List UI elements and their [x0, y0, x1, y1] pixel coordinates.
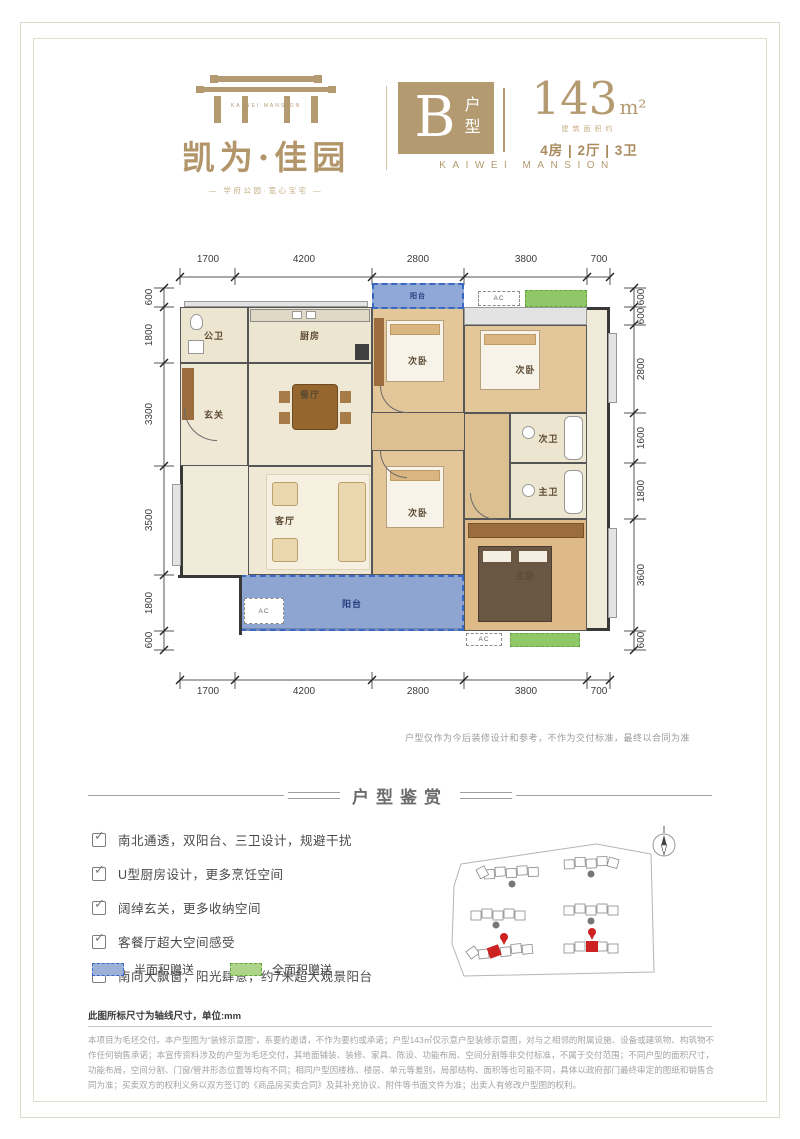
unit-rooms-summary: 4房 | 2厅 | 3卫	[514, 139, 664, 159]
ac-label: AC	[258, 608, 269, 615]
bath-sink	[522, 484, 535, 497]
master-bed	[478, 546, 552, 622]
dim-right-6: 3600	[636, 555, 648, 595]
feature-text: U型厨房设计，更多烹饪空间	[118, 864, 284, 883]
dim-right-7: 600	[636, 620, 648, 660]
double-line	[460, 792, 512, 799]
ac-unit-top: AC	[478, 291, 520, 306]
bay-window-living	[172, 484, 181, 566]
divider-line	[88, 795, 284, 796]
dim-bottom-4: 3800	[502, 686, 550, 698]
dim-left-1: 600	[144, 277, 156, 317]
half-gift-swatch	[92, 963, 124, 976]
dim-left-4: 3500	[144, 500, 156, 540]
ac-unit-bottom-left: AC	[244, 598, 284, 624]
checkbox-icon	[92, 935, 106, 949]
dining-chair	[340, 412, 351, 424]
brand-name-cn: 凯为·佳园	[150, 131, 382, 179]
dim-bottom-1: 1700	[184, 686, 232, 698]
checkbox-icon	[92, 901, 106, 915]
dim-bottom-2: 4200	[280, 686, 328, 698]
dimension-strip-bottom: 1700 4200 2800 3800 700	[170, 670, 630, 706]
ac-label: AC	[493, 295, 504, 302]
bathtub	[564, 416, 583, 460]
section-header: 户型鉴赏	[88, 783, 712, 808]
footer-divider	[88, 1026, 712, 1027]
dim-bottom-5: 700	[575, 686, 623, 698]
dim-top-3: 2800	[394, 254, 442, 266]
ac-label: AC	[478, 636, 489, 643]
feature-text: 客餐厅超大空间感受	[118, 932, 235, 951]
brand-logo: KAIWEI MANSION 凯为·佳园 — 学府公园·宽心宝宅 —	[150, 74, 382, 196]
room-label: 餐厅	[300, 388, 320, 401]
dimension-lines-right	[622, 280, 658, 660]
feature-item: 阔绰玄关，更多收纳空间	[92, 898, 432, 917]
wardrobe	[374, 318, 384, 386]
room-label: 公卫	[204, 329, 224, 342]
room-guest-bath: 公卫	[180, 307, 248, 363]
unit-area-value: 143	[532, 76, 618, 121]
building-marker	[588, 871, 595, 878]
bed	[386, 320, 444, 382]
dim-left-5: 1800	[144, 583, 156, 623]
dim-left-6: 600	[144, 620, 156, 660]
dimension-strip-right: 600 600 2800 1600 1800 3600 600	[622, 280, 658, 660]
legend-item: 全面积赠送	[230, 961, 332, 978]
gift-area-bottom	[510, 633, 580, 647]
armchair	[272, 538, 298, 562]
checkbox-icon	[92, 833, 106, 847]
legal-fine-print: 本项目为毛坯交付。本户型图为“装修示意图”，系要约邀请，不作为要约或承诺；户型1…	[88, 1033, 714, 1093]
dining-chair	[340, 391, 351, 403]
room-label: 主卧	[515, 569, 535, 582]
sofa	[338, 482, 366, 562]
stove	[355, 344, 369, 360]
header-divider	[386, 86, 387, 170]
full-gift-swatch	[230, 963, 262, 976]
section-title: 户型鉴赏	[352, 783, 448, 808]
legend-item: 半面积赠送	[92, 961, 194, 978]
dim-right-3: 2800	[636, 349, 648, 389]
dining-chair	[279, 391, 290, 403]
bathtub	[564, 470, 583, 514]
double-line	[288, 792, 340, 799]
room-label: 次卧	[515, 363, 535, 376]
room-label: 阳台	[410, 291, 426, 301]
gate-logo-icon: KAIWEI MANSION	[186, 74, 346, 124]
kitchen-sink	[292, 311, 302, 319]
gift-legend: 半面积赠送 全面积赠送	[92, 961, 332, 978]
building-marker	[509, 881, 516, 888]
room-label: 次卧	[408, 354, 428, 367]
highlighted-building	[586, 941, 598, 952]
site-plan-map	[446, 824, 698, 986]
legend-label: 半面积赠送	[134, 961, 194, 978]
svg-text:KAIWEI MANSION: KAIWEI MANSION	[231, 103, 301, 109]
legend-label: 全面积赠送	[272, 961, 332, 978]
dim-bottom-3: 2800	[394, 686, 442, 698]
bay-window-master	[608, 528, 617, 618]
feature-text: 阔绰玄关，更多收纳空间	[118, 898, 261, 917]
dim-top-1: 1700	[184, 254, 232, 266]
compass-icon	[653, 826, 675, 856]
unit-area-block: 143 m² 建筑面积约 4房 | 2厅 | 3卫	[514, 76, 664, 159]
feature-item: 南北通透，双阳台、三卫设计，规避干扰	[92, 830, 432, 849]
dim-right-2: 600	[636, 296, 648, 336]
bay-window-top-right	[464, 307, 587, 325]
floor-plan: 公卫 厨房 次卧 次卧 玄关 餐厅 次卫 主卫 客厅 次卧 主卧 阳台 AC 阳…	[180, 288, 610, 650]
room-label: 厨房	[300, 329, 320, 342]
wall-notch	[178, 575, 242, 635]
unit-letter: B	[414, 90, 455, 146]
feature-item: U型厨房设计，更多烹饪空间	[92, 864, 432, 883]
dimension-strip-left: 600 1800 3300 3500 1800 600	[140, 280, 174, 660]
dim-right-5: 1800	[636, 471, 648, 511]
plan-disclaimer: 户型仅作为今后装修设计和参考，不作为交付标准，最终以合同为准	[290, 731, 690, 744]
toilet	[190, 314, 203, 330]
room-label: 客厅	[275, 514, 295, 527]
unit-area-note: 建筑面积约	[514, 124, 664, 134]
bay-window-bedroom	[608, 333, 617, 403]
dim-right-4: 1600	[636, 418, 648, 458]
brand-tagline: — 学府公园·宽心宝宅 —	[150, 185, 382, 196]
gift-area-top	[525, 290, 587, 307]
building-marker	[588, 918, 595, 925]
dim-left-2: 1800	[144, 315, 156, 355]
dining-chair	[279, 412, 290, 424]
unit-area-unit: m²	[619, 95, 646, 119]
floorplan-poster-page: { "header": { "logo": { "brand_en": "KAI…	[0, 0, 800, 1139]
bath-sink	[522, 426, 535, 439]
feature-item: 客餐厅超大空间感受	[92, 932, 432, 951]
room-label: 玄关	[204, 408, 224, 421]
brand-name-en: KAIWEI MANSION	[398, 160, 656, 171]
window-top	[184, 301, 368, 307]
dim-left-3: 3300	[144, 394, 156, 434]
bath-sink	[188, 340, 204, 354]
room-label: 阳台	[342, 597, 362, 610]
feature-text: 南北通透，双阳台、三卫设计，规避干扰	[118, 830, 352, 849]
dimension-note: 此图所标尺寸为轴线尺寸，单位:mm	[88, 1008, 241, 1022]
kitchen-sink	[306, 311, 316, 319]
dim-top-5: 700	[575, 254, 623, 266]
unit-type-badge: B 户型	[398, 82, 494, 154]
building-marker	[493, 922, 500, 929]
room-label: 主卫	[538, 485, 558, 498]
unit-type-label: 户型	[462, 96, 478, 140]
dimension-strip-top: 1700 4200 2800 3800 700	[170, 252, 630, 286]
ac-unit-bottom-right: AC	[466, 633, 502, 646]
room-label: 次卧	[408, 506, 428, 519]
unit-divider	[503, 88, 505, 152]
checkbox-icon	[92, 867, 106, 881]
room-label: 次卫	[538, 432, 558, 445]
dim-top-4: 3800	[502, 254, 550, 266]
dim-top-2: 4200	[280, 254, 328, 266]
balcony-top: 阳台	[372, 283, 464, 309]
armchair	[272, 482, 298, 506]
hallway	[372, 413, 464, 450]
bed	[480, 330, 540, 390]
divider-line	[516, 795, 712, 796]
wardrobe	[468, 523, 584, 538]
